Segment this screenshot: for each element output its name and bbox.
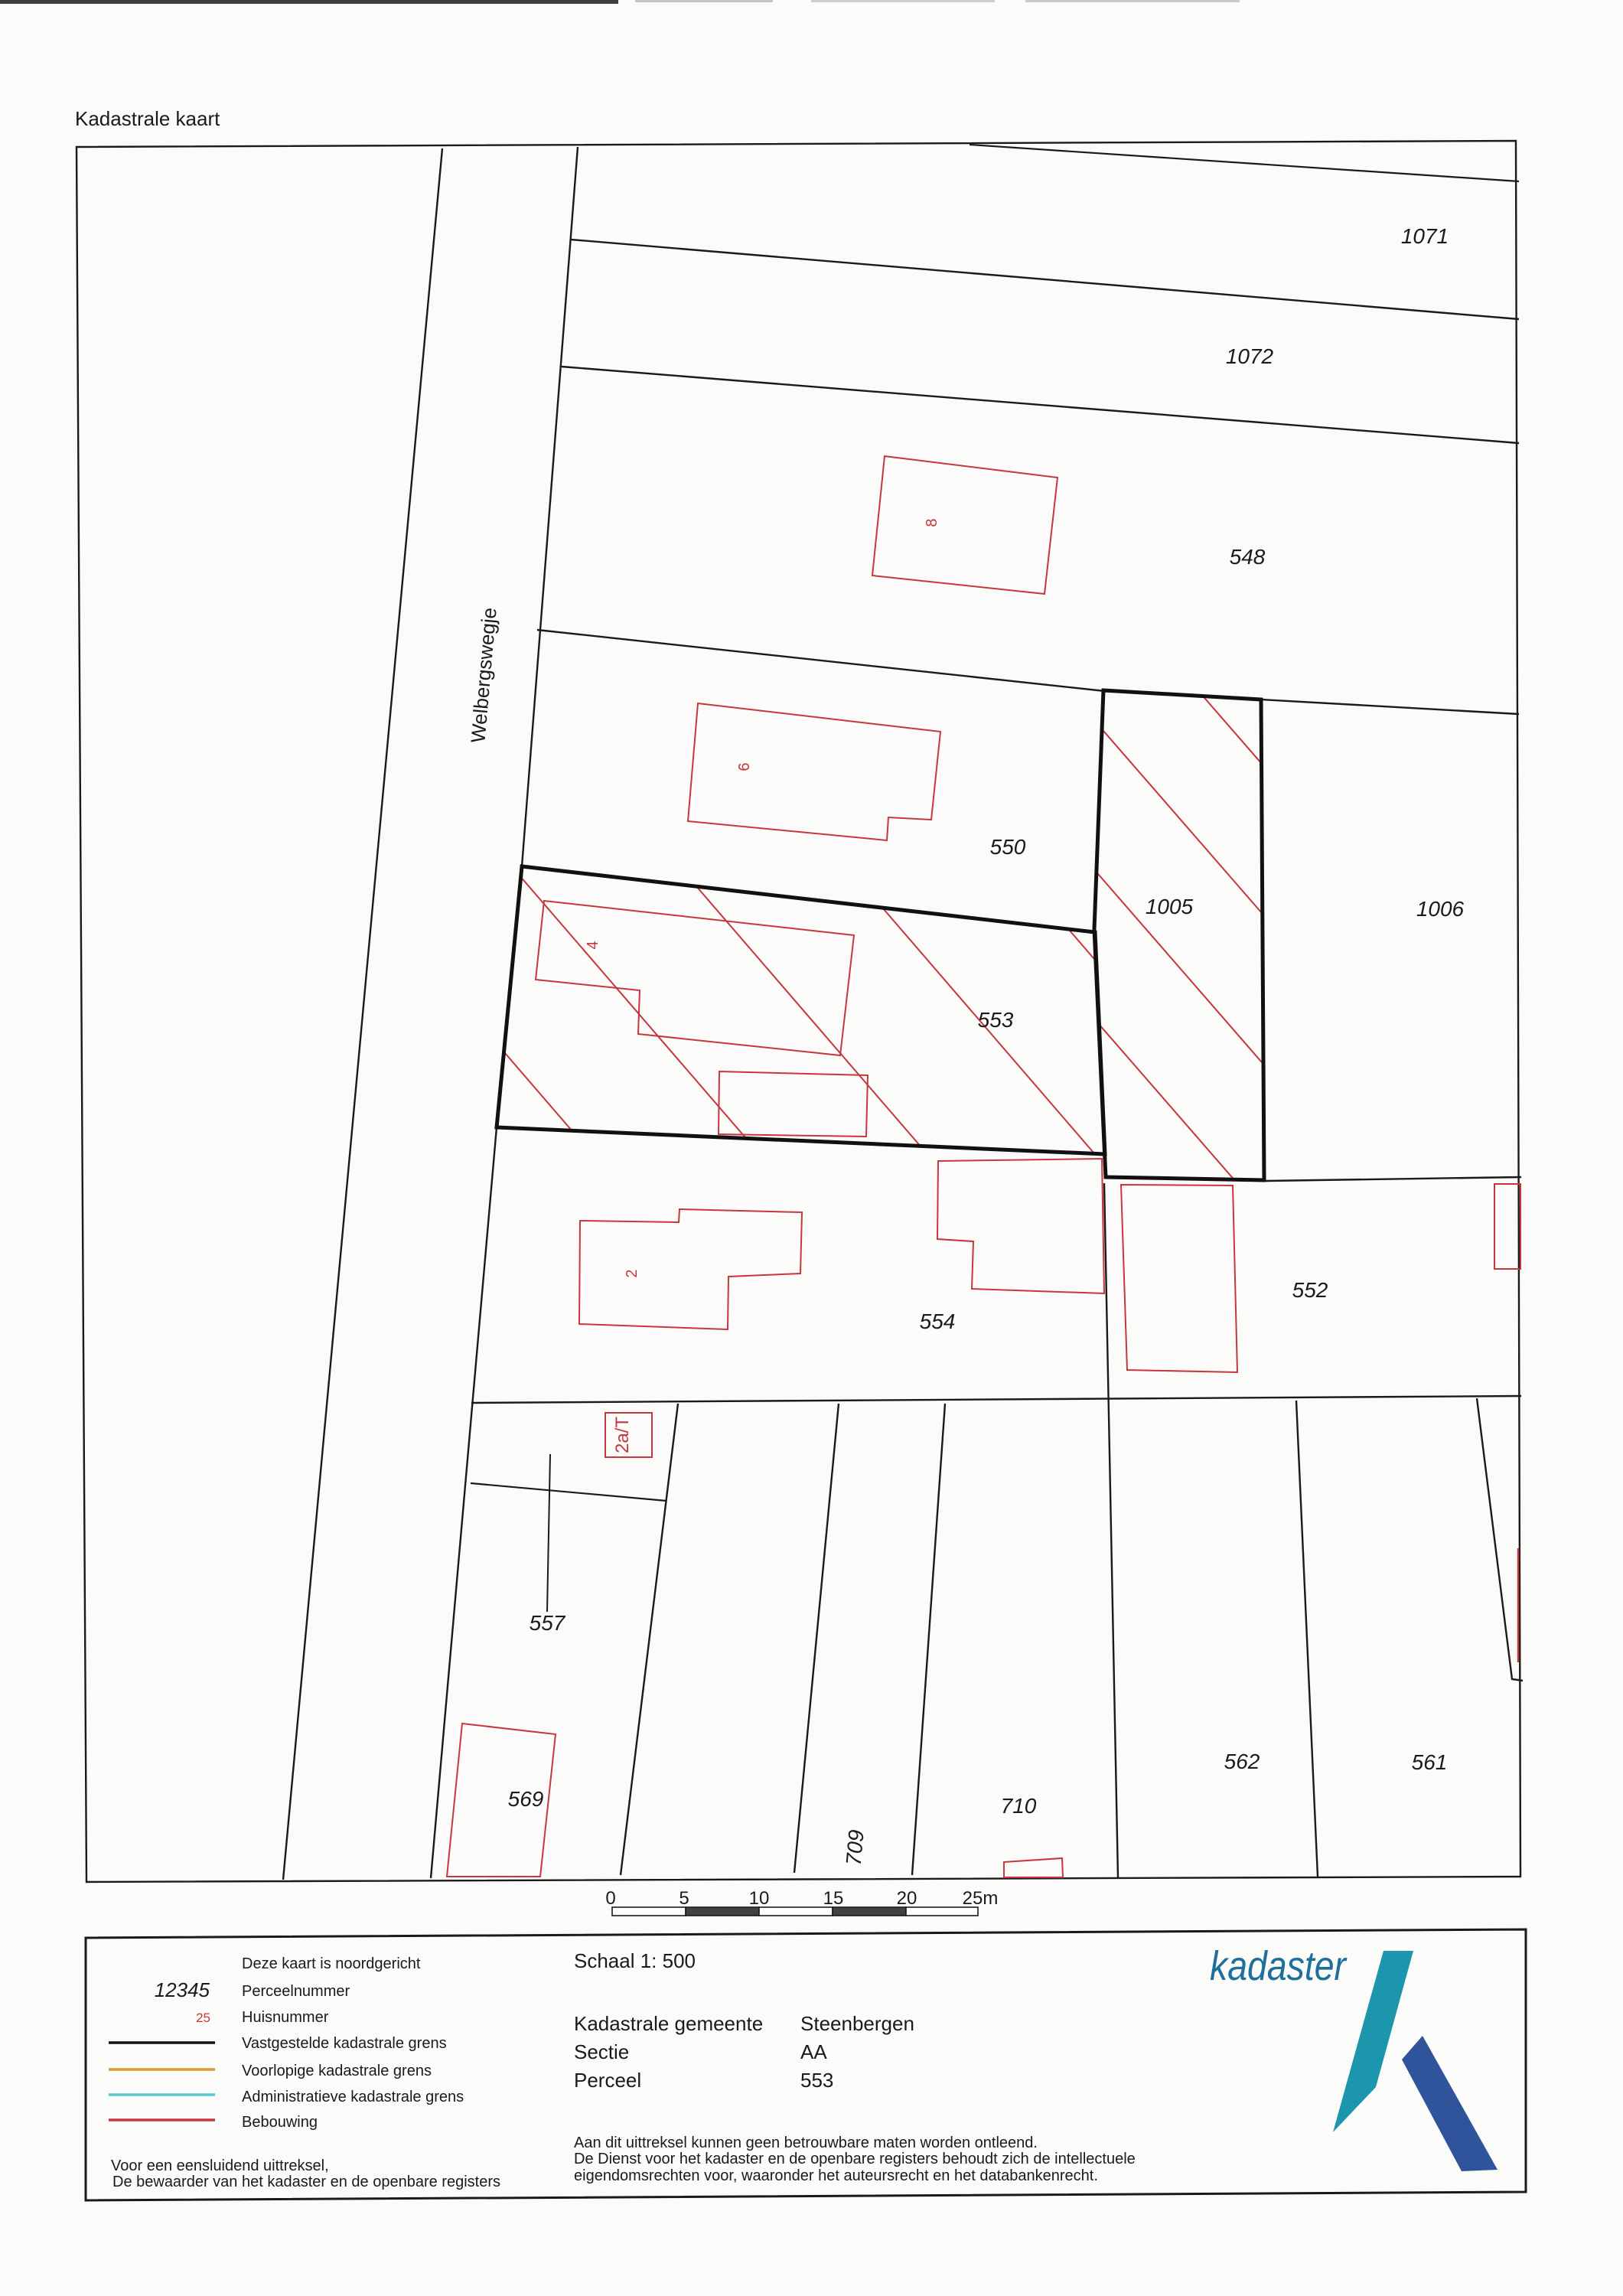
svg-text:8: 8 xyxy=(924,518,940,527)
svg-text:553: 553 xyxy=(800,2069,833,2092)
svg-text:Steenbergen: Steenbergen xyxy=(800,2012,914,2035)
svg-text:709: 709 xyxy=(842,1829,869,1867)
svg-text:Voor een eensluidend uittrekse: Voor een eensluidend uittreksel, xyxy=(111,2157,329,2174)
svg-text:1072: 1072 xyxy=(1226,344,1274,368)
svg-text:561: 561 xyxy=(1412,1750,1448,1774)
svg-text:0: 0 xyxy=(605,1888,615,1909)
svg-text:5: 5 xyxy=(679,1888,689,1909)
svg-text:552: 552 xyxy=(1292,1278,1328,1302)
svg-text:557: 557 xyxy=(530,1611,566,1635)
svg-text:Deze kaart is noordgericht: Deze kaart is noordgericht xyxy=(242,1955,421,1972)
svg-text:1005: 1005 xyxy=(1146,895,1194,918)
svg-text:2a/T: 2a/T xyxy=(612,1417,633,1453)
svg-text:Voorlopige kadastrale grens: Voorlopige kadastrale grens xyxy=(242,2063,432,2079)
svg-text:1006: 1006 xyxy=(1416,897,1465,921)
svg-text:Vastgestelde kadastrale grens: Vastgestelde kadastrale grens xyxy=(242,2035,447,2052)
svg-text:eigendomsrechten voor, waarond: eigendomsrechten voor, waaronder het aut… xyxy=(574,2167,1098,2184)
svg-text:Welbergswegje: Welbergswegje xyxy=(466,607,500,744)
svg-text:Huisnummer: Huisnummer xyxy=(242,2009,329,2026)
svg-text:562: 562 xyxy=(1224,1750,1260,1773)
svg-text:10: 10 xyxy=(749,1888,770,1909)
svg-text:Bebouwing: Bebouwing xyxy=(242,2114,318,2131)
svg-text:15: 15 xyxy=(823,1888,844,1909)
svg-text:Perceelnummer: Perceelnummer xyxy=(242,1983,350,2000)
svg-text:Administratieve kadastrale gre: Administratieve kadastrale grens xyxy=(242,2089,464,2105)
svg-text:553: 553 xyxy=(978,1008,1014,1032)
svg-text:25m: 25m xyxy=(963,1888,999,1909)
svg-text:20: 20 xyxy=(897,1888,917,1909)
svg-text:12345: 12345 xyxy=(155,1978,210,2001)
svg-text:1071: 1071 xyxy=(1401,224,1449,248)
svg-text:710: 710 xyxy=(1001,1794,1037,1818)
svg-text:Perceel: Perceel xyxy=(574,2069,641,2092)
svg-text:De bewaarder van het kadaster: De bewaarder van het kadaster en de open… xyxy=(112,2174,500,2190)
svg-text:kadaster: kadaster xyxy=(1210,1943,1348,1989)
svg-text:De Dienst voor het kadaster en: De Dienst voor het kadaster en de openba… xyxy=(574,2151,1136,2167)
svg-text:Kadastrale kaart: Kadastrale kaart xyxy=(75,107,220,130)
svg-text:569: 569 xyxy=(508,1787,544,1811)
svg-text:Aan dit uittreksel kunnen geen: Aan dit uittreksel kunnen geen betrouwba… xyxy=(574,2135,1038,2151)
svg-text:Kadastrale gemeente: Kadastrale gemeente xyxy=(574,2012,763,2035)
svg-text:AA: AA xyxy=(800,2040,827,2063)
svg-text:Schaal 1: 500: Schaal 1: 500 xyxy=(574,1949,696,1972)
svg-text:548: 548 xyxy=(1230,545,1266,569)
svg-text:554: 554 xyxy=(920,1309,956,1333)
svg-text:2: 2 xyxy=(624,1269,640,1277)
svg-text:25: 25 xyxy=(196,2011,210,2025)
svg-text:550: 550 xyxy=(990,835,1026,859)
svg-text:Sectie: Sectie xyxy=(574,2040,629,2063)
svg-text:6: 6 xyxy=(736,762,753,771)
svg-text:4: 4 xyxy=(585,941,601,949)
